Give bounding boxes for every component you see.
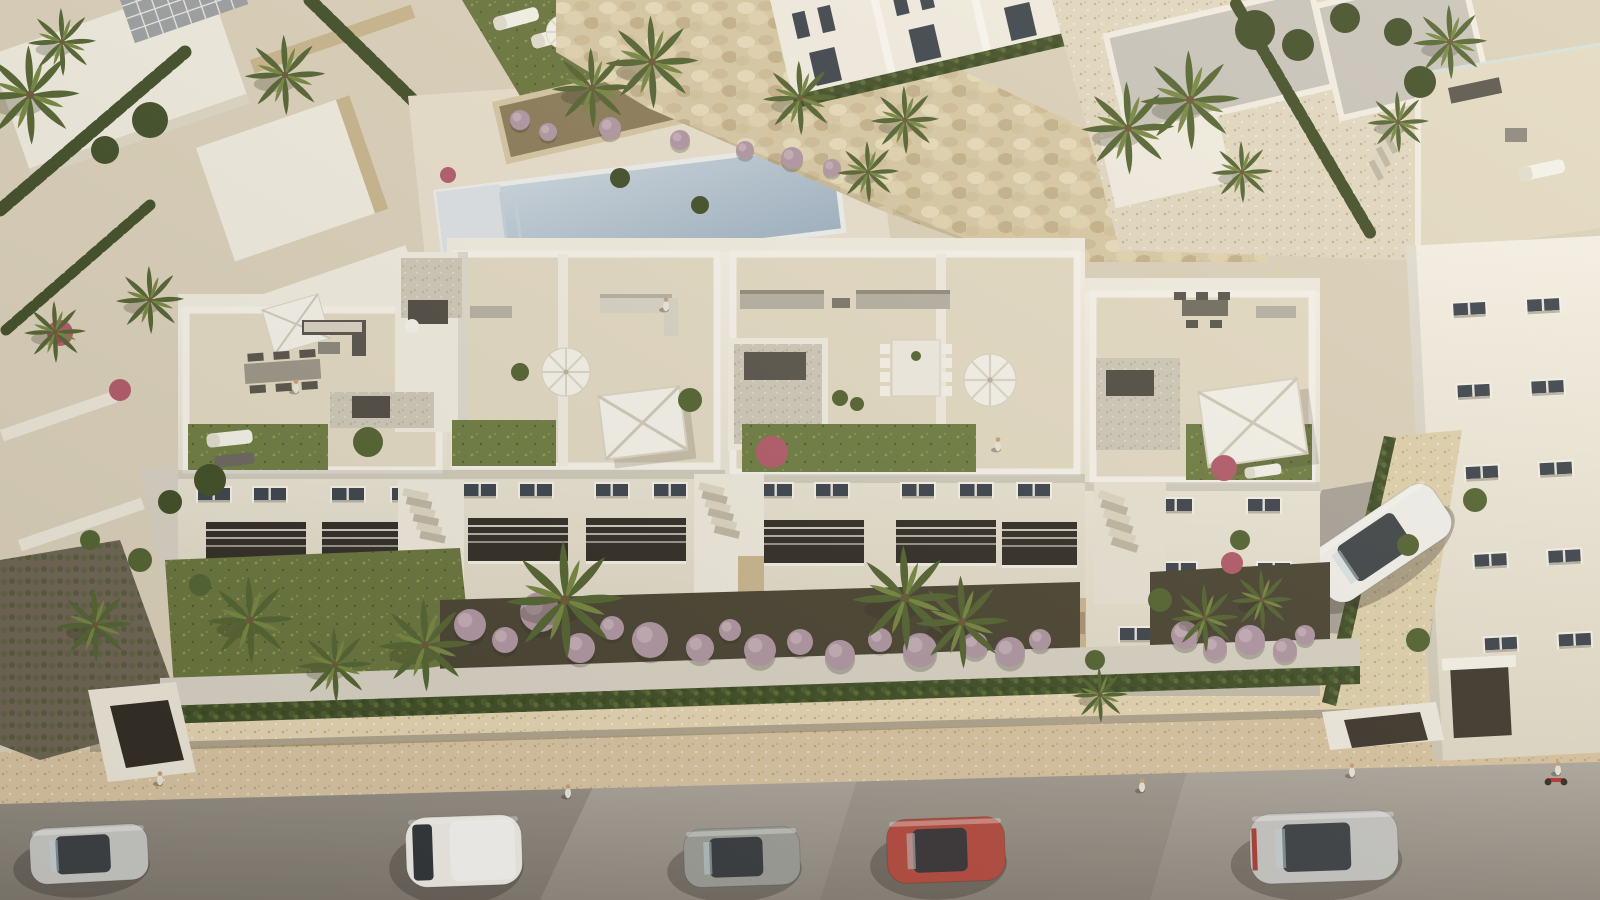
render-viewport <box>0 0 1600 900</box>
scene-svg <box>0 0 1600 900</box>
sunlight-overlay <box>0 0 1600 900</box>
